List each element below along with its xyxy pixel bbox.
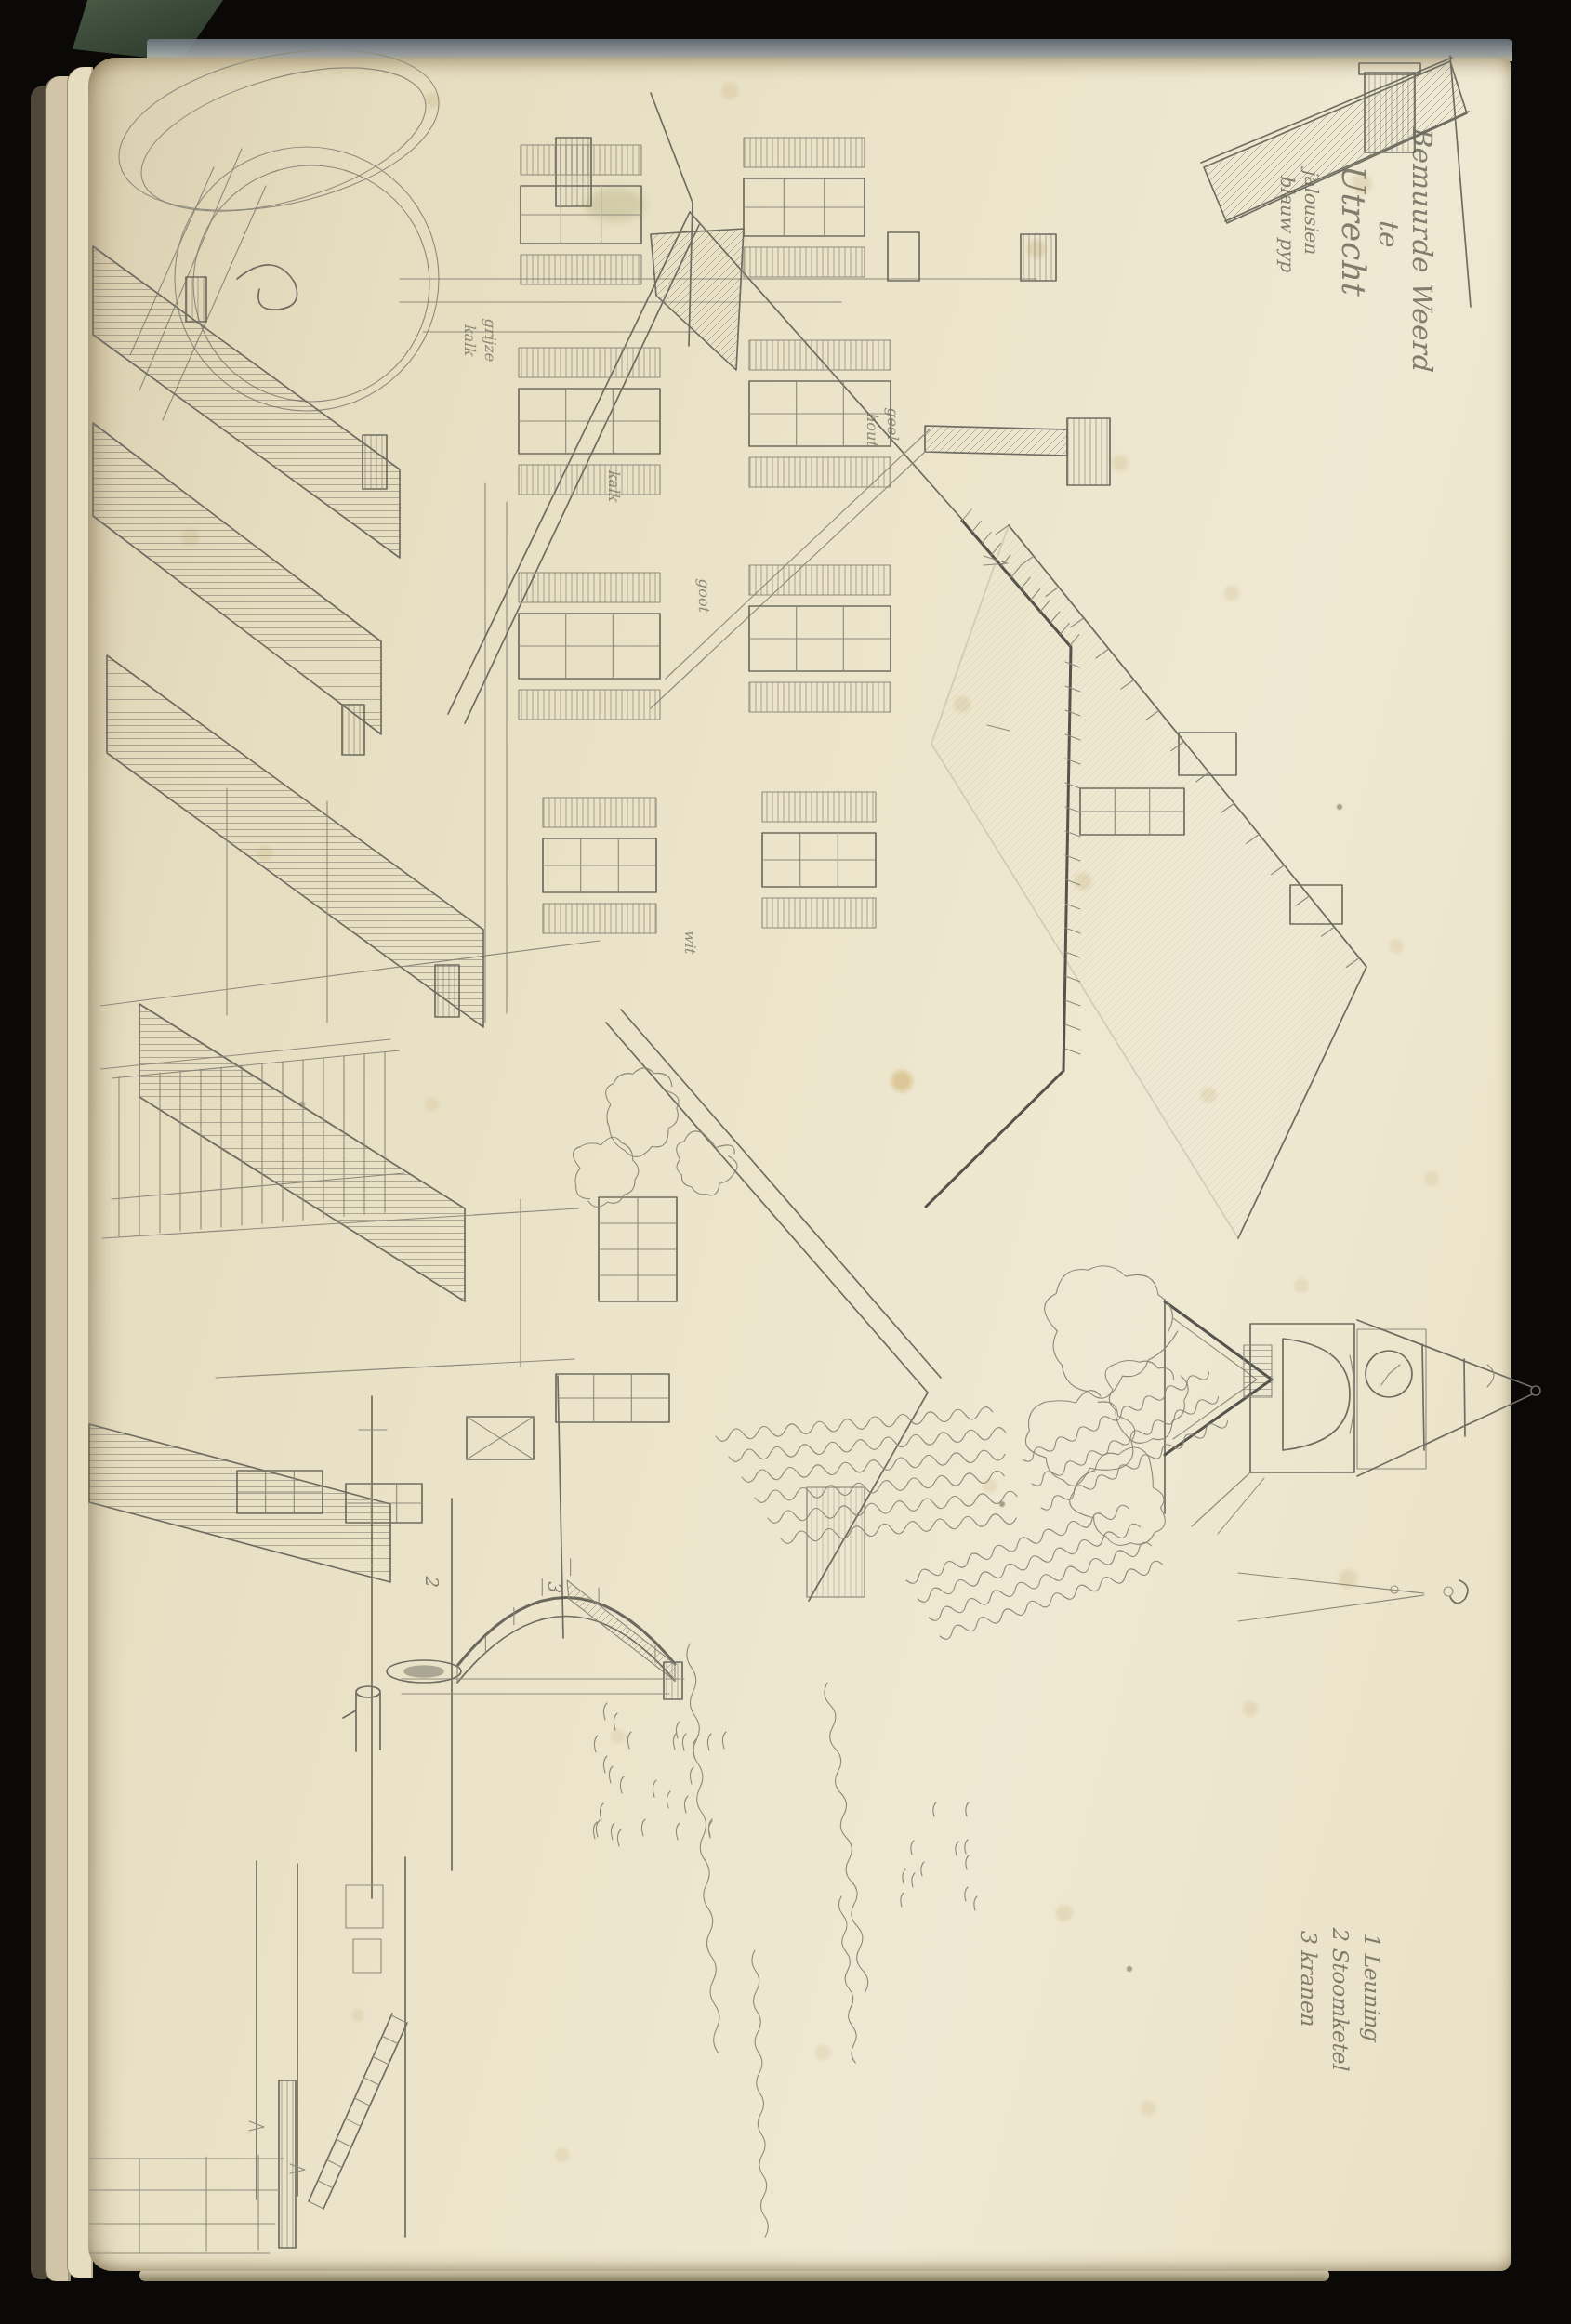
note-grijze-kalk: grijzekalk: [461, 318, 499, 362]
plank-wall: [89, 2155, 284, 2253]
clock-tower: [1165, 1300, 1540, 1534]
right-roof: [931, 525, 1366, 1238]
legend-inscription: 1 Leuning2 Stoomketel3 kranen: [1297, 1926, 1384, 2072]
lower-house: [467, 1010, 941, 1638]
note-kalk: kalk: [605, 469, 623, 503]
note-goot: goot: [695, 578, 713, 614]
legend-mark-3: 3: [545, 1580, 565, 1593]
legend-mark-2: 2: [422, 1575, 442, 1588]
scan-background: Bemuurde WeerdteUtrecht jalousienblauw p…: [0, 0, 1571, 2324]
left-roofs: [93, 246, 507, 1301]
title-inscription: Bemuurde WeerdteUtrecht: [1335, 125, 1438, 372]
pencil-sketch: Bemuurde WeerdteUtrecht jalousienblauw p…: [0, 0, 1571, 2324]
clock-hands: [1381, 1365, 1400, 1385]
vegetation-scribbles: [573, 1068, 1227, 2237]
spire-study: [1238, 1573, 1468, 1621]
stairs: [309, 2014, 407, 2209]
pump-and-well: [343, 1660, 461, 1973]
center-gable: [448, 93, 1056, 723]
note-wit: wit: [681, 930, 699, 955]
shed-roof: [89, 1424, 390, 2248]
